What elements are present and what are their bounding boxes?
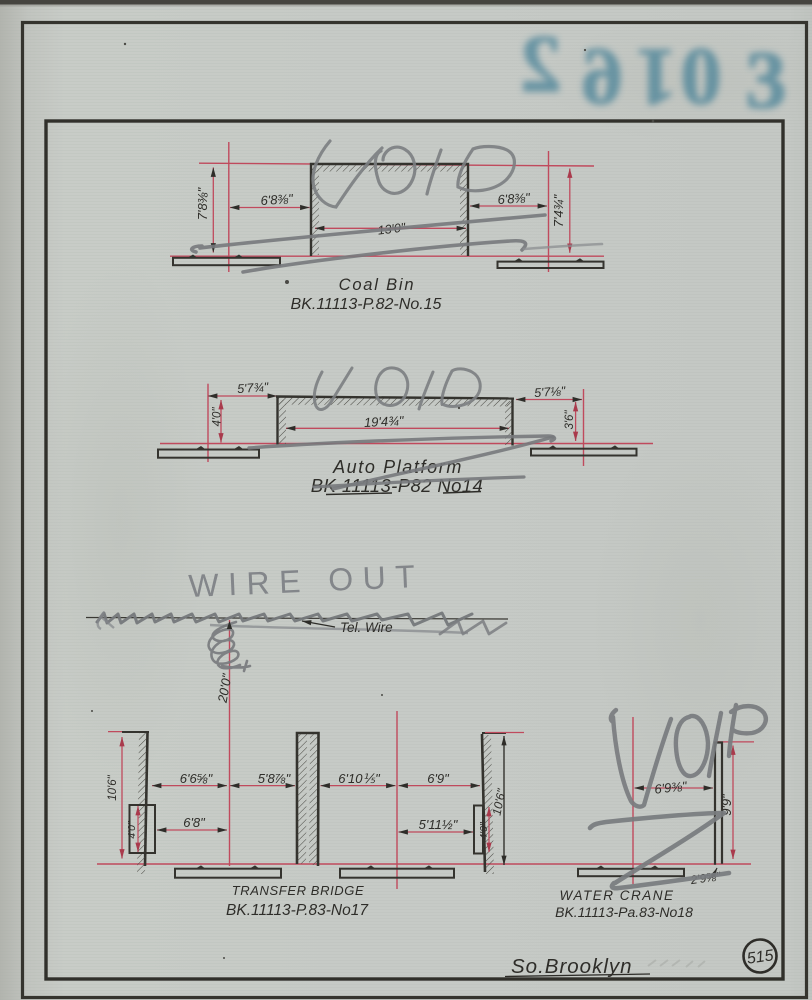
svg-text:6'8⅜": 6'8⅜"	[260, 191, 295, 208]
svg-text:6'6⅝": 6'6⅝"	[180, 771, 214, 786]
svg-text:5'8⅞": 5'8⅞"	[258, 771, 292, 786]
svg-text:7'4¾": 7'4¾"	[551, 193, 566, 227]
svg-text:1: 1	[636, 32, 677, 123]
svg-text:3: 3	[746, 34, 787, 125]
svg-text:6'8⅜": 6'8⅜"	[497, 190, 532, 207]
svg-text:Tel. Wire: Tel. Wire	[340, 620, 393, 635]
svg-text:TRANSFER BRIDGE: TRANSFER BRIDGE	[232, 883, 365, 898]
svg-text:3'6": 3'6"	[564, 410, 576, 430]
svg-text:10'6": 10'6"	[107, 774, 119, 800]
svg-text:5'7⅛": 5'7⅛"	[534, 384, 567, 400]
svg-text:6'9": 6'9"	[427, 771, 450, 786]
svg-text:BK.11113-P.83-No17: BK.11113-P.83-No17	[226, 902, 369, 919]
svg-text:BK.11113-P.82-No.15: BK.11113-P.82-No.15	[291, 296, 442, 313]
svg-text:6: 6	[582, 30, 623, 121]
svg-text:0: 0	[681, 30, 722, 121]
svg-text:19'4¾": 19'4¾"	[364, 413, 406, 430]
svg-text:6'10⅕": 6'10⅕"	[338, 771, 381, 786]
svg-text:5'7¾": 5'7¾"	[237, 380, 270, 396]
svg-text:4'0": 4'0"	[126, 820, 138, 839]
svg-text:5'11½": 5'11½"	[419, 817, 459, 832]
svg-text:7'8⅜": 7'8⅜"	[195, 186, 210, 220]
svg-text:2: 2	[521, 18, 562, 109]
svg-text:Coal Bin: Coal Bin	[339, 276, 416, 294]
svg-text:BK.11113-Pa.83-No18: BK.11113-Pa.83-No18	[555, 904, 693, 920]
svg-text:4'0": 4'0"	[212, 407, 224, 427]
svg-text:4'0": 4'0"	[478, 821, 490, 840]
svg-text:6'8": 6'8"	[183, 815, 206, 830]
